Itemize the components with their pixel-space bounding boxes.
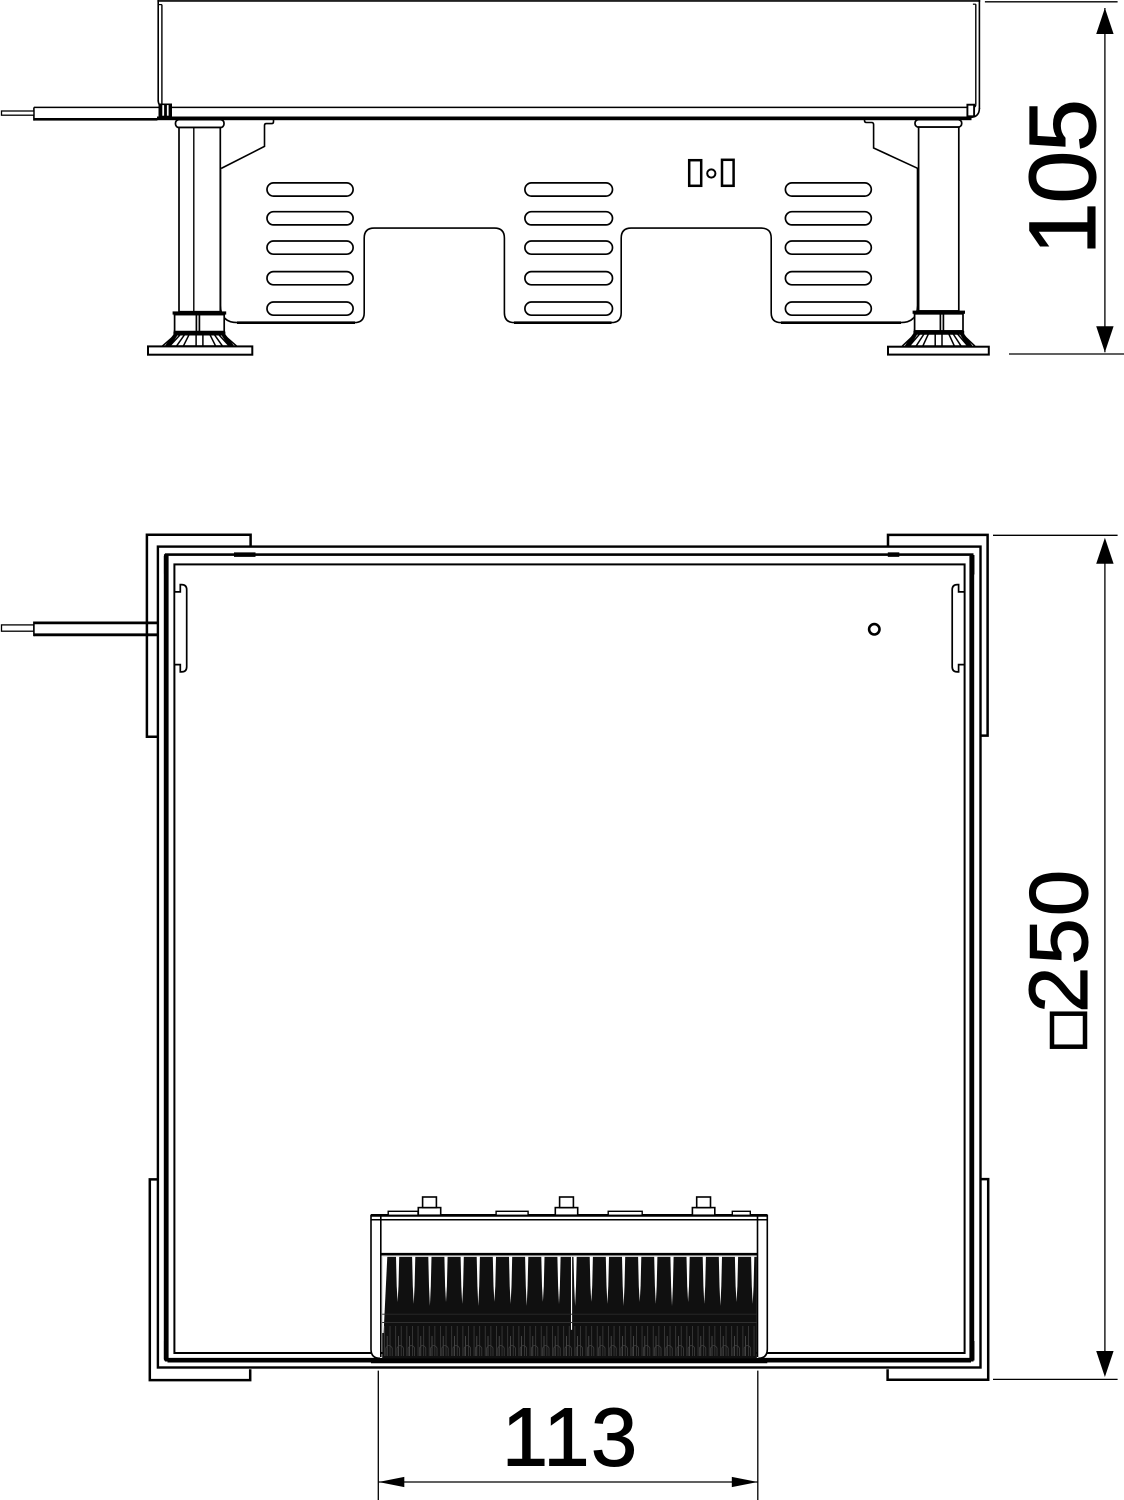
svg-text:250: 250 [1012,868,1105,1013]
svg-text:105: 105 [1010,100,1116,255]
svg-text:113: 113 [502,1391,639,1484]
